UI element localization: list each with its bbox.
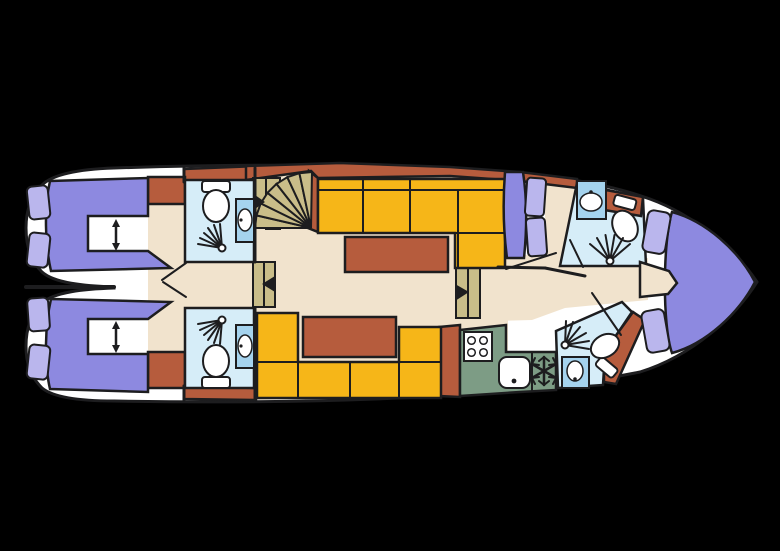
table-bottom [303, 317, 396, 357]
pillow [26, 232, 50, 268]
shower-head [607, 258, 614, 265]
table-top [345, 237, 448, 272]
pillow [525, 177, 547, 216]
wardrobe-top [148, 177, 185, 204]
berth-icon [504, 172, 526, 258]
shower-head [562, 342, 569, 349]
aft-cabin-floor [148, 202, 186, 362]
shower-head [219, 317, 226, 324]
step [253, 262, 264, 307]
wardrobe-bottom [148, 352, 185, 388]
pillow [27, 297, 50, 331]
pillow [526, 217, 548, 256]
washbasin-icon [236, 325, 254, 368]
boat-floor-plan [0, 0, 780, 551]
washbasin-icon [577, 181, 606, 219]
washbasin-icon [562, 357, 589, 388]
aft-corridor-floor [184, 258, 256, 310]
shower-head [219, 245, 226, 252]
pillow [26, 344, 50, 380]
pillow [26, 185, 50, 220]
washbasin-icon [236, 199, 254, 242]
floor-plan-canvas [0, 0, 780, 551]
sink-icon [499, 357, 530, 388]
toilet-icon [202, 181, 230, 222]
mid-berth [504, 172, 548, 258]
stove-icon [464, 332, 492, 361]
step [468, 268, 480, 318]
toilet-icon [202, 345, 230, 388]
